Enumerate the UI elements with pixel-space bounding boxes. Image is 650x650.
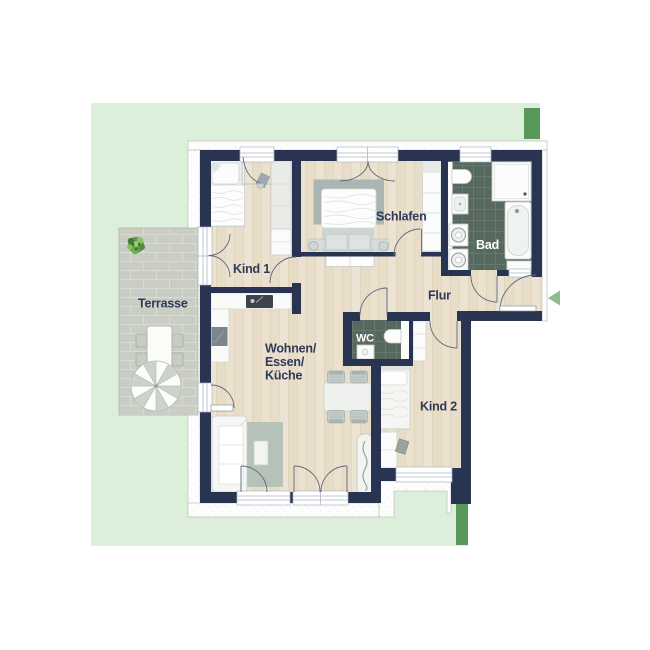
- svg-text:Schlafen: Schlafen: [376, 210, 427, 224]
- svg-text:Flur: Flur: [428, 289, 451, 303]
- svg-text:Kind 2: Kind 2: [420, 400, 457, 414]
- svg-text:Kind 1: Kind 1: [233, 262, 270, 276]
- svg-text:Wohnen/: Wohnen/: [265, 342, 317, 356]
- svg-text:Küche: Küche: [265, 369, 302, 383]
- svg-text:Bad: Bad: [476, 238, 499, 252]
- svg-text:Terrasse: Terrasse: [138, 297, 188, 311]
- svg-text:Essen/: Essen/: [265, 355, 305, 369]
- svg-text:WC: WC: [356, 333, 374, 345]
